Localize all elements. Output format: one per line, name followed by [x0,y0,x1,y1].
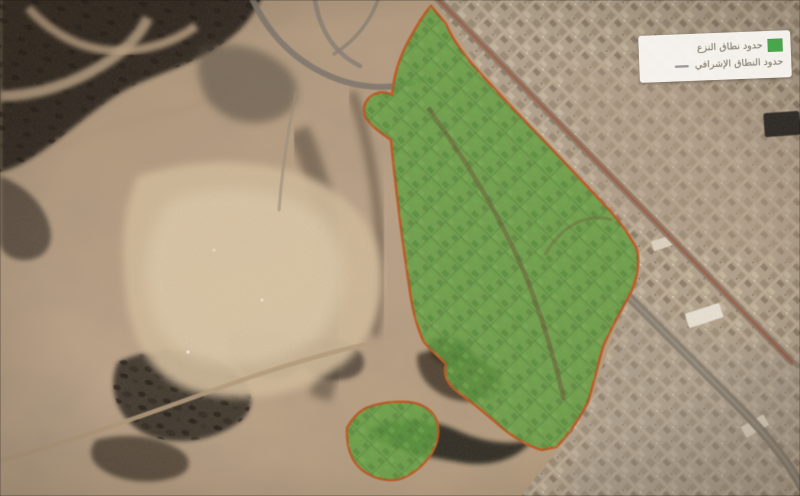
legend-label: حدود النطاق الإشرافي [695,56,784,71]
map-screenshot: حدود نطاق النزع حدود النطاق الإشرافي [0,0,800,496]
map-legend: حدود نطاق النزع حدود النطاق الإشرافي [638,30,792,83]
line-swatch-icon [675,62,690,69]
area-swatch-icon [767,38,782,52]
legend-label: حدود نطاق النزع [697,40,763,55]
